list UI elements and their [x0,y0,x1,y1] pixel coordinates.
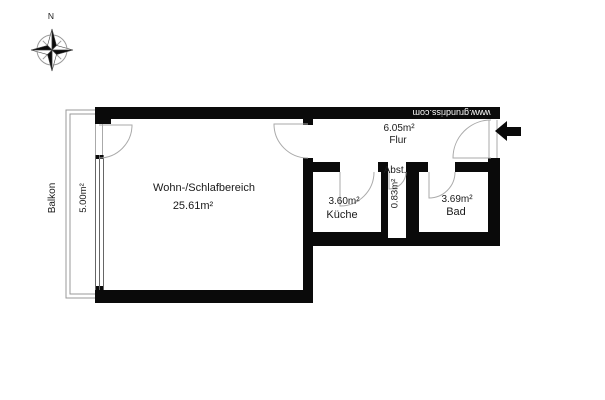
room-label-abst-area: 0.83m² [391,176,402,212]
balcony-door-frame [96,124,103,155]
abst-floor-notch [388,232,406,238]
watermark-text: www.grundriss.com [404,107,499,119]
wall-pier-topleft [95,107,111,124]
room-label-flur-area: 6.05m² [359,123,439,135]
room-label-bad-name: Bad [416,206,496,219]
wall-flur-kueche-a [313,162,340,172]
room-label-balkon-name: Balkon [47,176,61,220]
room-label-living-name: Wohn-/Schlafbereich [114,182,294,195]
compass-rose-icon [31,29,73,71]
room-label-flur-name: Flur [358,135,438,147]
balcony-door [99,125,132,158]
floor-plan-page: N www.grundriss.com Wohn-/Schlafbereich … [0,0,605,400]
room-label-kueche-name: Küche [302,209,382,222]
entrance-door-frame [489,120,497,158]
wall-living-flur [303,158,313,303]
living-door [274,124,308,158]
balcony-window [96,155,104,290]
room-label-living-area: 25.61m² [143,200,243,213]
wall-flur-bad-a [419,162,428,172]
room-label-bad-area: 3.69m² [417,194,497,206]
room-label-kueche-area: 3.60m² [304,196,384,208]
wall-living-bottom [95,290,313,303]
room-label-balkon-area: 5.00m² [79,176,91,220]
entrance-door [453,120,491,158]
compass-north-label: N [41,11,61,21]
wall-flur-bad-b [455,162,488,172]
entrance-arrow-icon [495,121,521,141]
